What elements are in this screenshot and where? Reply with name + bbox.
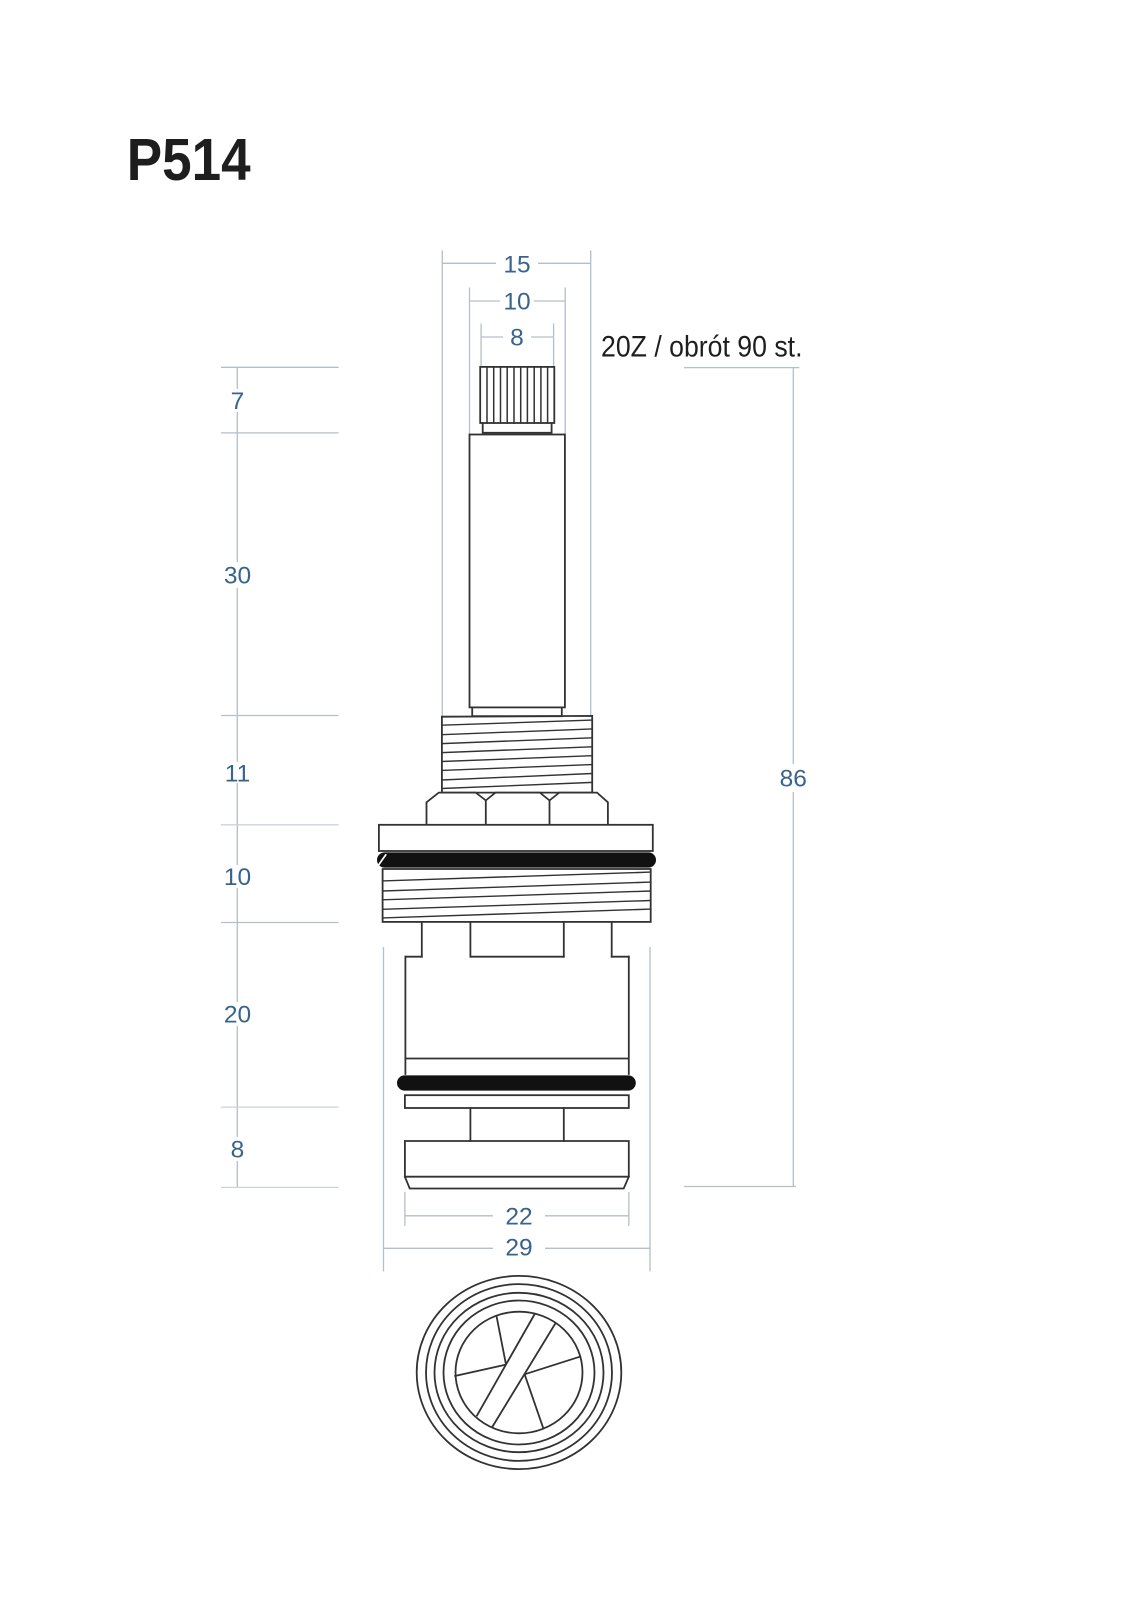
svg-text:8: 8 (231, 1137, 245, 1164)
svg-text:20: 20 (224, 1002, 251, 1029)
svg-text:11: 11 (225, 761, 250, 788)
svg-text:P514: P514 (127, 127, 251, 193)
svg-text:10: 10 (224, 864, 251, 891)
svg-text:20Z / obrót 90 st.: 20Z / obrót 90 st. (601, 331, 803, 364)
svg-text:10: 10 (503, 289, 530, 316)
svg-text:7: 7 (231, 388, 245, 415)
svg-text:15: 15 (503, 252, 530, 279)
svg-text:86: 86 (780, 766, 807, 793)
svg-text:29: 29 (505, 1234, 532, 1261)
svg-text:8: 8 (510, 325, 524, 352)
svg-text:30: 30 (224, 563, 251, 590)
svg-text:22: 22 (505, 1203, 532, 1230)
